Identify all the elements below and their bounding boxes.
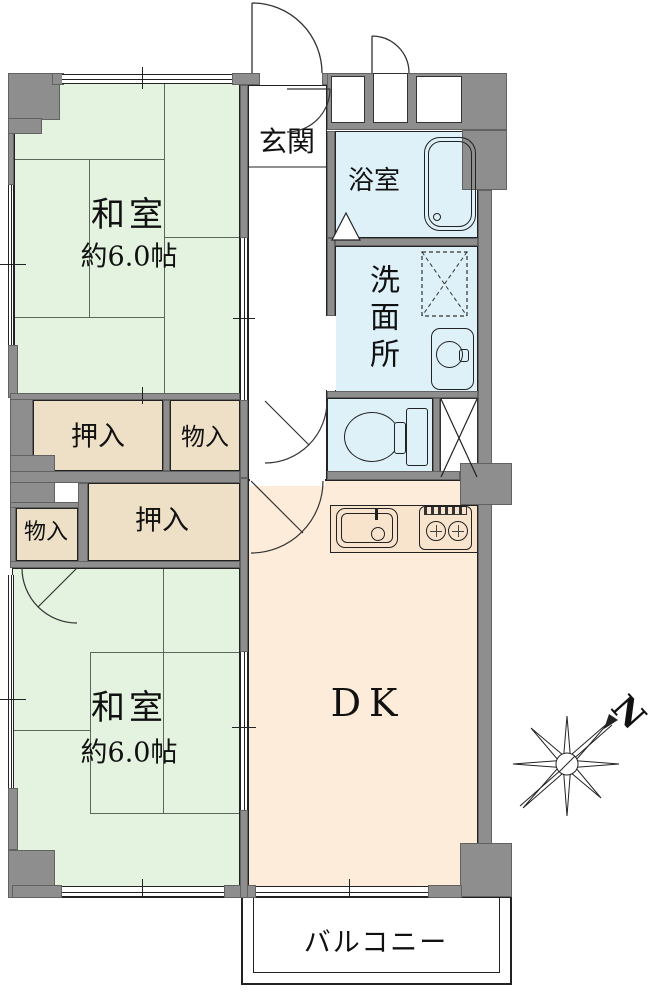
- toilet-bowl-icon: [344, 412, 400, 462]
- stove-burner: [426, 521, 446, 541]
- compass-hub: [556, 753, 578, 775]
- wall-segment: [460, 843, 512, 897]
- wall-segment: [8, 118, 42, 134]
- wall-segment: [163, 400, 170, 471]
- bathtub-drain: [433, 213, 441, 221]
- doorway-hall-washroom: [326, 316, 336, 390]
- window-tick: [233, 318, 255, 319]
- toilet-tank-icon: [406, 408, 428, 466]
- tatami-line: [164, 237, 239, 238]
- wall-segment: [240, 400, 248, 478]
- tatami-line: [15, 159, 165, 160]
- compass-needle-line: [520, 725, 612, 806]
- window-tick: [232, 727, 256, 728]
- window-tick: [142, 879, 143, 898]
- floor-plan: 和室 約6.0帖 和室 約6.0帖 玄関 浴室 洗面所 押入 物入 押入 物入 …: [0, 0, 654, 1000]
- window-tick: [349, 879, 350, 898]
- tatami-line: [90, 813, 239, 814]
- washroom-label: 洗面所: [366, 264, 396, 375]
- wall-segment: [428, 885, 462, 898]
- wall-segment: [433, 398, 440, 478]
- toilet-seat-joint: [394, 422, 406, 454]
- utility-box: [331, 76, 365, 123]
- wall-segment: [10, 398, 33, 458]
- tatami-line: [13, 730, 90, 731]
- room-washitsu-lower: [12, 568, 240, 898]
- compass-arrowhead: [604, 714, 618, 729]
- genkan-label: 玄関: [259, 128, 315, 156]
- utility-box: [416, 76, 462, 123]
- window-left-lower: [8, 575, 14, 788]
- tatami-line: [164, 81, 165, 397]
- washbasin-faucet: [459, 349, 469, 362]
- closet1-label: 押入: [71, 424, 125, 451]
- wall-segment: [8, 788, 18, 850]
- wall-segment: [8, 133, 14, 185]
- tatami-line: [15, 317, 165, 318]
- wall-segment: [10, 393, 240, 400]
- kitchen-sink-inner: [341, 513, 393, 543]
- bath-label: 浴室: [348, 168, 400, 194]
- wall-segment: [240, 478, 248, 652]
- room2-name-label: 和室: [91, 691, 167, 725]
- wall-segment: [12, 885, 62, 898]
- compass: N: [513, 688, 653, 816]
- wall-segment: [232, 73, 260, 85]
- window-tick: [142, 67, 143, 89]
- window-left-upper: [8, 185, 14, 345]
- wall-segment: [240, 810, 248, 898]
- tatami-line: [90, 652, 91, 813]
- window-bottom-room2: [62, 886, 224, 897]
- compass-north-label: N: [603, 688, 654, 738]
- wall-segment: [327, 471, 460, 480]
- room2-size-label: 約6.0帖: [81, 740, 178, 767]
- wall-segment: [327, 238, 335, 316]
- wall-segment: [335, 238, 478, 246]
- wall-segment: [240, 85, 248, 238]
- wall-segment: [327, 131, 335, 238]
- wall-segment: [10, 471, 240, 483]
- room1-size-label: 約6.0帖: [81, 244, 178, 271]
- storage1-label: 物入: [181, 425, 229, 449]
- kitchen-drain: [371, 527, 385, 541]
- dk-label: DK: [331, 684, 406, 722]
- wall-segment: [327, 391, 478, 398]
- wall-segment: [10, 505, 16, 568]
- doorway-hall-dk: [250, 474, 325, 486]
- window-balcony-door: [256, 886, 428, 897]
- wall-segment: [78, 483, 88, 568]
- entrance-door-arc: [252, 3, 322, 73]
- window-tick: [0, 699, 26, 700]
- wall-segment: [10, 561, 240, 568]
- tatami-line: [89, 159, 90, 317]
- utility-door-arc: [372, 36, 409, 73]
- window-tick: [142, 387, 143, 404]
- room-washitsu-upper: [14, 80, 240, 398]
- wall-segment: [478, 190, 492, 845]
- tatami-line: [90, 652, 239, 653]
- window-top: [62, 74, 232, 84]
- balcony-label: バルコニー: [304, 930, 448, 957]
- stove-grill: [424, 507, 467, 515]
- kitchen-faucet: [375, 509, 378, 520]
- closet2-label: 押入: [135, 508, 189, 535]
- sliding-door-room1-hall: [240, 238, 248, 400]
- room1-name-label: 和室: [91, 198, 167, 232]
- window-tick: [0, 264, 26, 265]
- sliding-door-room2-dk: [240, 652, 248, 810]
- storage2-label: 物入: [24, 522, 68, 544]
- wall-segment: [460, 463, 512, 505]
- wall-segment: [10, 502, 80, 508]
- wall-segment: [8, 345, 18, 398]
- utility-box: [373, 73, 408, 123]
- stove-burner: [448, 521, 468, 541]
